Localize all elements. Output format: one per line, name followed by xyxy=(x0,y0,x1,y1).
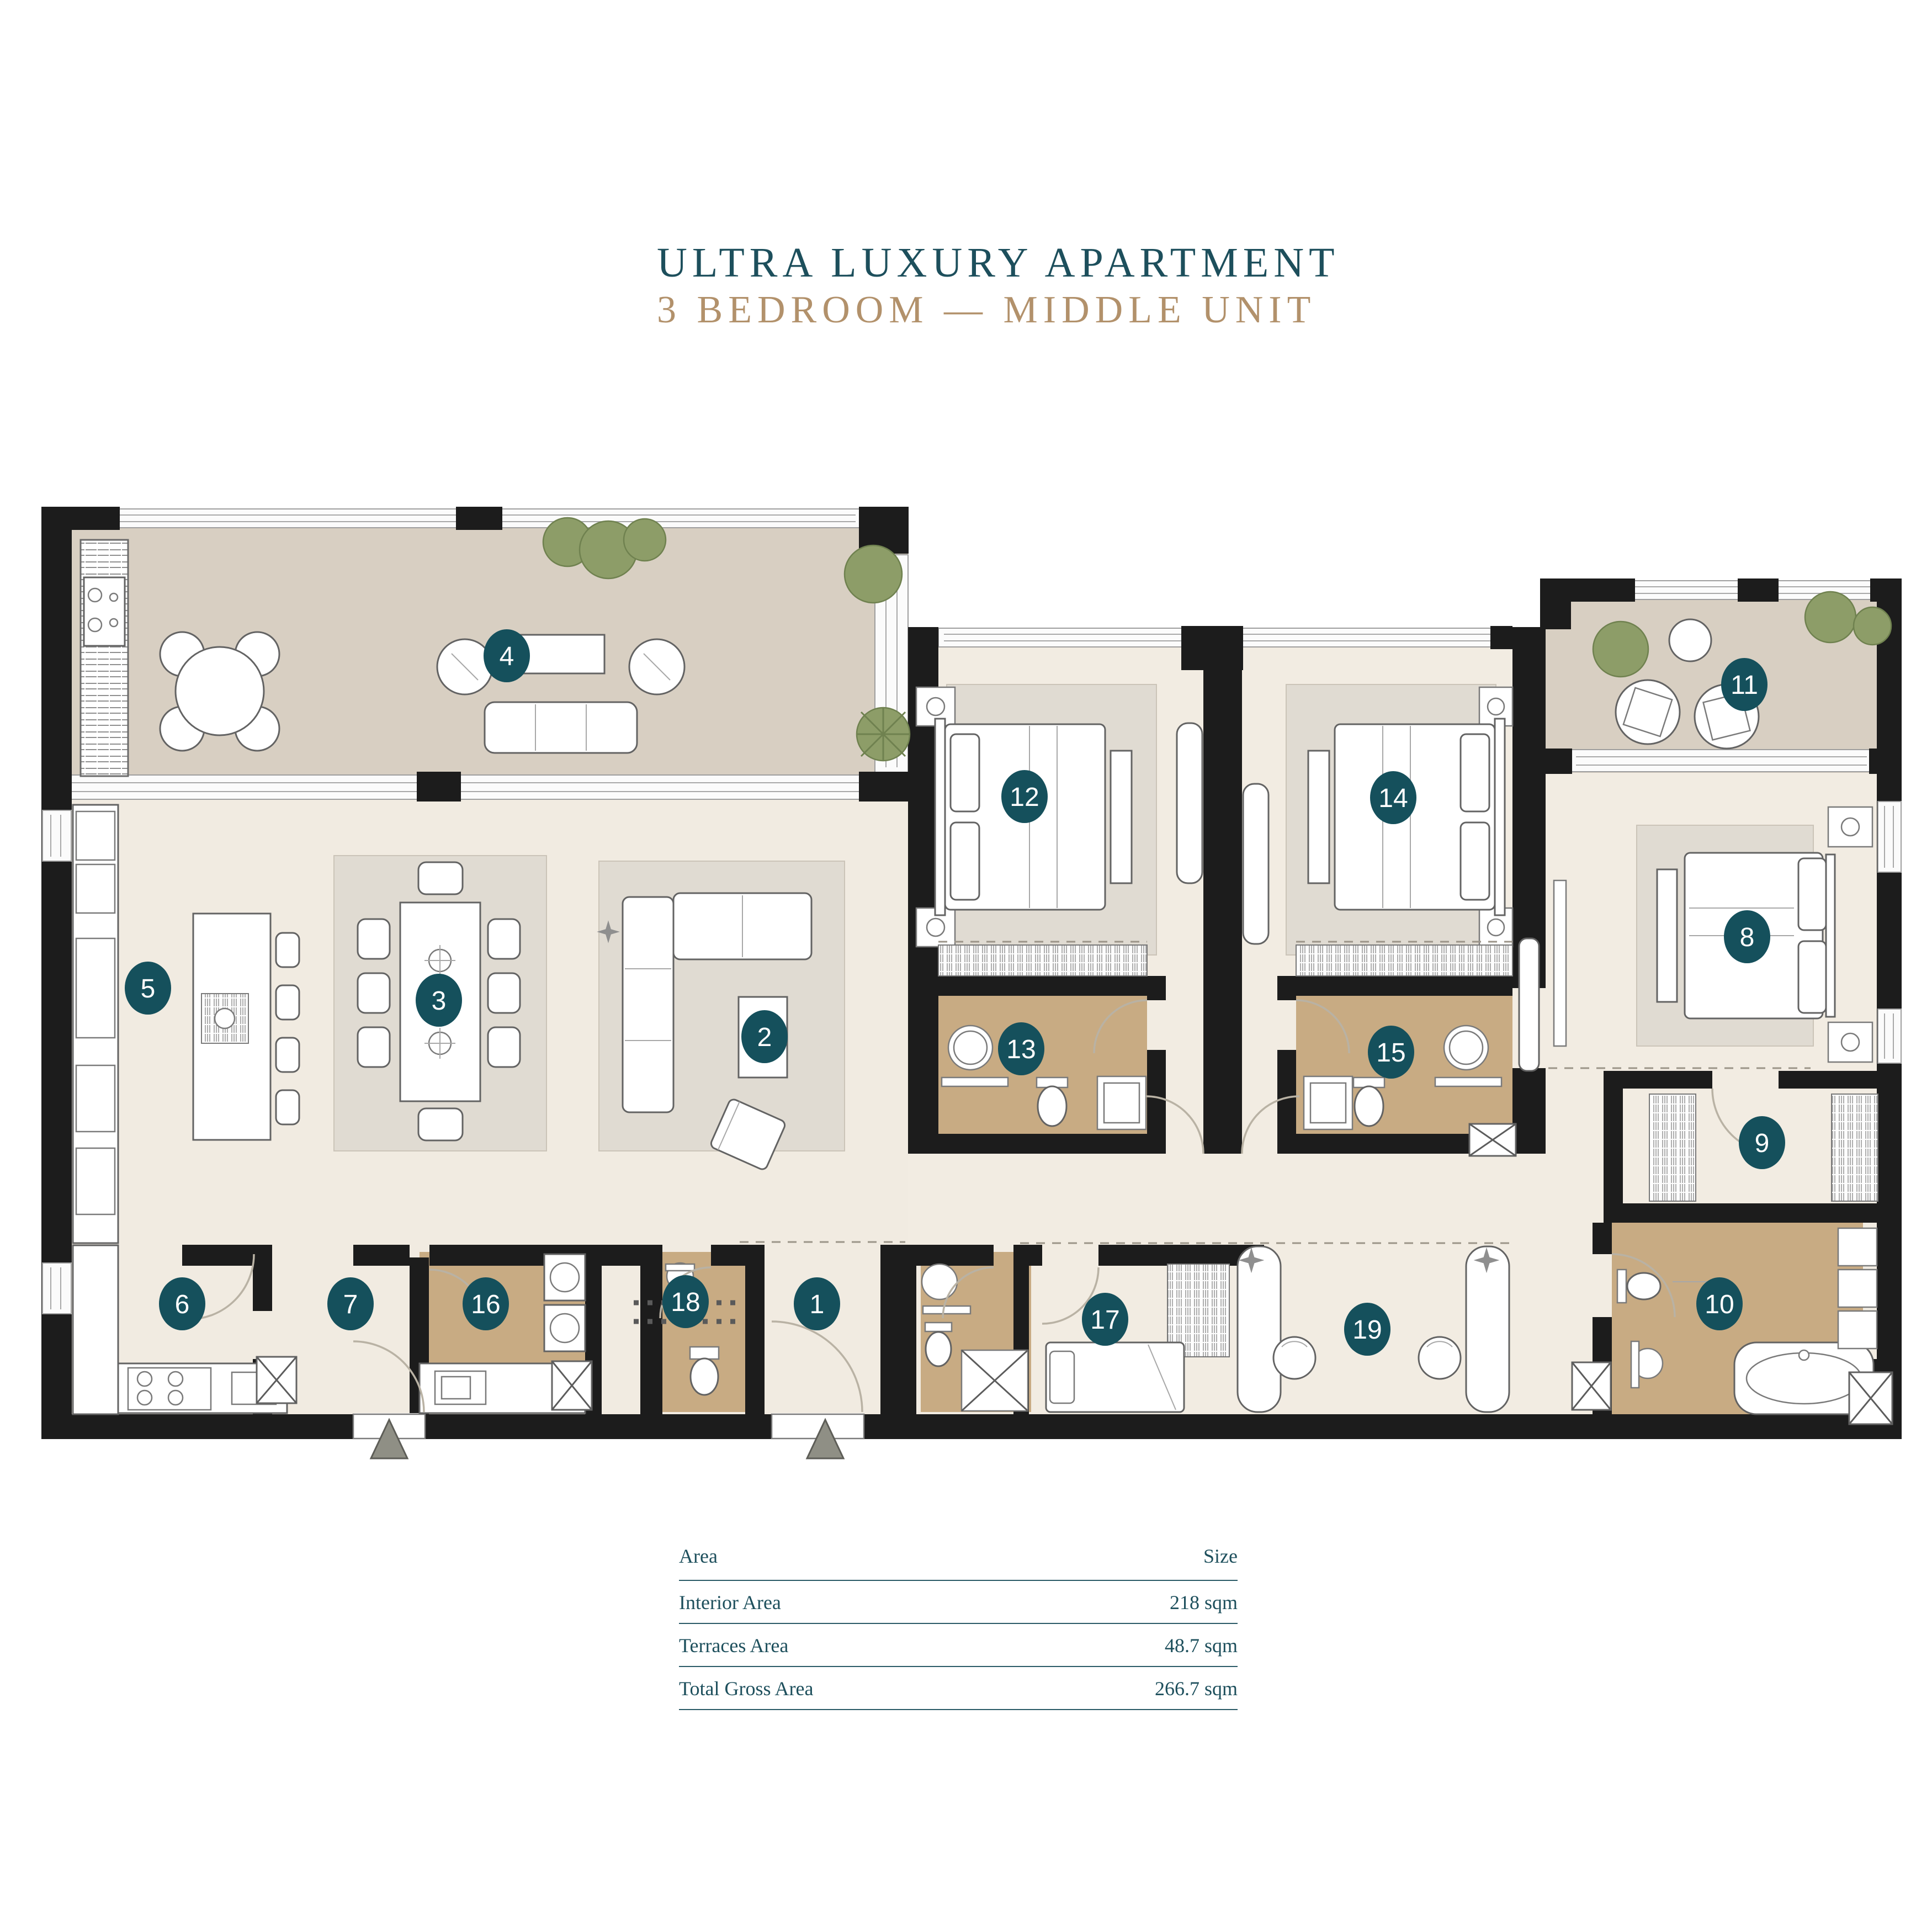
outdoor-coffee-table xyxy=(519,635,604,673)
svg-text:6: 6 xyxy=(175,1290,190,1319)
svg-text:8: 8 xyxy=(1740,923,1755,952)
brochure-page: ULTRA LUXURY APARTMENT 3 BEDROOM — MIDDL… xyxy=(0,0,1932,1932)
svg-text:12: 12 xyxy=(1010,783,1039,812)
svg-text:2: 2 xyxy=(757,1023,772,1052)
svg-text:16: 16 xyxy=(471,1290,500,1319)
svg-text:3: 3 xyxy=(432,986,447,1016)
table-row: Terraces Area48.7 sqm xyxy=(679,1623,1238,1666)
room-badge-12: 12 xyxy=(1001,770,1048,823)
svg-text:15: 15 xyxy=(1376,1038,1405,1068)
room-badge-1: 1 xyxy=(794,1277,840,1330)
svg-text:9: 9 xyxy=(1755,1129,1770,1158)
room-badge-9: 9 xyxy=(1739,1116,1785,1169)
room-badge-17: 17 xyxy=(1082,1293,1128,1346)
table-row: Interior Area218 sqm xyxy=(679,1580,1238,1623)
area-label: Terraces Area xyxy=(679,1623,1025,1666)
tv-console xyxy=(1554,880,1566,1046)
wardrobe-12 xyxy=(938,945,1147,976)
stove xyxy=(128,1368,211,1410)
table-row: Total Gross Area266.7 sqm xyxy=(679,1666,1238,1710)
svg-text:4: 4 xyxy=(500,642,514,671)
room-badge-3: 3 xyxy=(416,974,462,1027)
table-header-row: Area Size xyxy=(679,1544,1238,1580)
room-badge-16: 16 xyxy=(463,1277,509,1330)
room-badge-8: 8 xyxy=(1724,910,1770,963)
room-badge-11: 11 xyxy=(1721,658,1768,711)
room-badge-14: 14 xyxy=(1370,771,1416,824)
room-badge-13: 13 xyxy=(998,1022,1044,1075)
outdoor-kitchen-counter xyxy=(81,540,128,776)
room-badge-2: 2 xyxy=(741,1010,788,1063)
room-badge-10: 10 xyxy=(1696,1277,1743,1330)
outdoor-dining-table xyxy=(160,632,279,751)
room-badge-6: 6 xyxy=(159,1277,205,1330)
room-badge-4: 4 xyxy=(484,629,530,682)
area-size-value: 266.7 sqm xyxy=(1025,1666,1238,1710)
svg-text:5: 5 xyxy=(141,974,156,1004)
area-size-value: 218 sqm xyxy=(1025,1580,1238,1623)
room-badge-7: 7 xyxy=(327,1277,374,1330)
terrace-side-table xyxy=(1669,619,1711,661)
svg-text:11: 11 xyxy=(1731,671,1758,700)
wardrobe-14 xyxy=(1296,945,1512,976)
svg-text:1: 1 xyxy=(810,1290,825,1319)
room-badge-5: 5 xyxy=(125,962,171,1015)
area-label: Interior Area xyxy=(679,1580,1025,1623)
column-header-size: Size xyxy=(1025,1544,1238,1580)
svg-text:19: 19 xyxy=(1352,1315,1382,1345)
svg-text:18: 18 xyxy=(671,1288,700,1317)
area-size-value: 48.7 sqm xyxy=(1025,1623,1238,1666)
room-badge-19: 19 xyxy=(1344,1303,1390,1356)
svg-text:17: 17 xyxy=(1090,1305,1119,1335)
area-summary-table: Area Size Interior Area218 sqmTerraces A… xyxy=(679,1544,1238,1710)
column-header-area: Area xyxy=(679,1544,1025,1580)
area-label: Total Gross Area xyxy=(679,1666,1025,1710)
room-badge-18: 18 xyxy=(662,1275,709,1328)
bbq-grill xyxy=(84,577,125,646)
svg-text:13: 13 xyxy=(1006,1035,1036,1064)
svg-text:14: 14 xyxy=(1378,784,1408,813)
room-badge-15: 15 xyxy=(1368,1026,1414,1079)
svg-text:10: 10 xyxy=(1705,1290,1734,1319)
linen-closet xyxy=(1469,1124,1516,1156)
svg-text:7: 7 xyxy=(343,1290,358,1319)
